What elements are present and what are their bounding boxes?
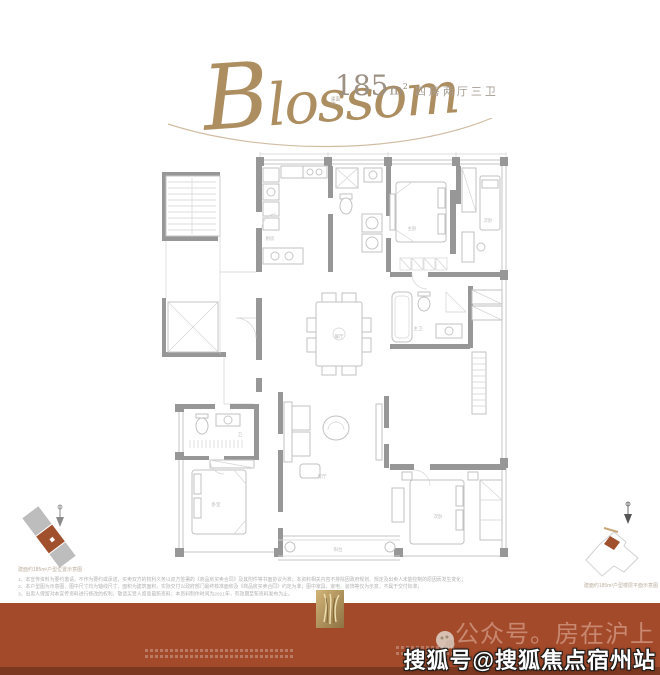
- stair-core: [162, 172, 220, 241]
- left-diagram-caption: 建面约185m²户型位置示意图: [18, 565, 82, 573]
- master-bedroom-furniture: [390, 182, 447, 270]
- bedroom-tr-furniture: [462, 168, 500, 262]
- label-dining: 餐厅: [335, 333, 344, 340]
- area-prefix-line2: 约: [331, 102, 340, 107]
- label-balcony: 阳台: [334, 546, 343, 553]
- area-unit-sup: 2: [403, 82, 408, 91]
- bedroom-bl-furniture: [192, 460, 254, 534]
- floorplan-ad-page: Blossom 建面 约 185 m2 四房两厅三卫: [0, 0, 660, 675]
- area-info: 建面 约 185 m2 四房两厅三卫: [331, 72, 499, 106]
- brand-emblem: [316, 590, 344, 630]
- elevator: [162, 176, 256, 404]
- layout-text: 四房两厅三卫: [415, 83, 499, 99]
- bedroom-br-furniture: [392, 472, 502, 544]
- faint-text-strip-left: [145, 649, 293, 661]
- label-kitchen: 厨房: [266, 235, 275, 242]
- compass-icon: [52, 503, 68, 529]
- building-position-diagram: [20, 503, 120, 563]
- unit-accent-mark: [604, 528, 618, 532]
- label-master-bath: 主卫: [414, 325, 423, 331]
- disclaimer: 1、本宣传资料为要约邀请，不作为要约或承诺，买卖双方的权利义务以双方签署的《商品…: [18, 576, 563, 597]
- floor-plan: 厨房 主卧 次卧 餐厅 客厅 主卫 卫 卧室 次卧 阳台: [150, 152, 512, 568]
- living-furniture: [284, 402, 382, 478]
- label-bedroom-bl: 卧室: [212, 501, 221, 508]
- floor-plate-diagram: [574, 498, 660, 586]
- label-bath2: 卫: [238, 432, 243, 437]
- label-living: 客厅: [318, 473, 327, 480]
- sohu-watermark: 搜狐号@搜狐焦点宿州站: [404, 643, 656, 675]
- central-bath-fixtures: [336, 168, 382, 252]
- label-bedroom-br: 次卧: [434, 513, 443, 520]
- compass-icon: [624, 502, 632, 524]
- area-number: 185: [335, 72, 388, 100]
- label-master: 主卧: [408, 225, 417, 232]
- dressing-wardrobes: [472, 290, 502, 414]
- area-unit-base: m: [389, 83, 402, 99]
- label-bedroom-tr: 次卧: [484, 217, 493, 224]
- dimension-line: [260, 152, 506, 157]
- area-unit: m2: [389, 82, 407, 99]
- area-prefix: 建面 约: [331, 97, 340, 106]
- kitchen-fixtures: [263, 166, 327, 264]
- disclaimer-line3: 3、出卖人保留对本宣传资料进行修改的权利，敬请买受人留意最新资料；本资料制作时间…: [18, 590, 563, 597]
- bath2-fixtures: [190, 414, 242, 448]
- disclaimer-line1: 1、本宣传资料为要约邀请，不作为要约或承诺，买卖双方的权利义务以双方签署的《商品…: [18, 576, 563, 583]
- master-bath-fixtures: [392, 292, 466, 342]
- disclaimer-line2: 2、本户型图为示意图，图中尺寸均为轴线尺寸，面积为建筑面积，实际交付以政府部门最…: [18, 583, 563, 590]
